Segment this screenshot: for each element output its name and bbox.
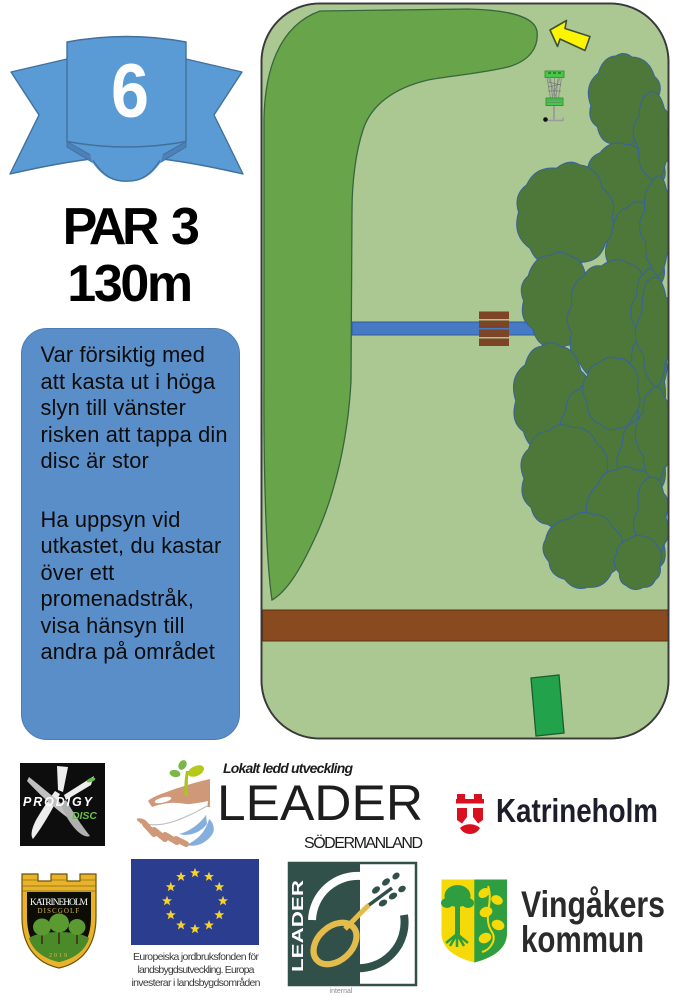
svg-text:investerar i landsbygdsområden: investerar i landsbygdsområden [132,977,261,989]
svg-text:Europeiska jordbruksfonden för: Europeiska jordbruksfonden för [133,951,260,963]
svg-text:kommun: kommun [521,919,644,960]
svg-text:SÖDERMANLAND: SÖDERMANLAND [304,834,423,852]
svg-text:internal: internal [330,988,353,995]
svg-text:2019: 2019 [49,953,69,959]
svg-text:DISCGOLF: DISCGOLF [38,908,81,915]
svg-text:LEADER: LEADER [290,880,307,972]
svg-text:DISC: DISC [72,810,97,822]
svg-text:Lokalt ledd utveckling: Lokalt ledd utveckling [223,760,353,776]
svg-text:landsbygdsutveckling. Europa: landsbygdsutveckling. Europa [138,964,255,976]
svg-text:Katrineholm: Katrineholm [496,792,658,829]
svg-text:LEADER: LEADER [217,775,423,831]
svg-text:KATRINEHOLM: KATRINEHOLM [30,898,89,908]
svg-text:PRODIGY: PRODIGY [23,795,94,809]
